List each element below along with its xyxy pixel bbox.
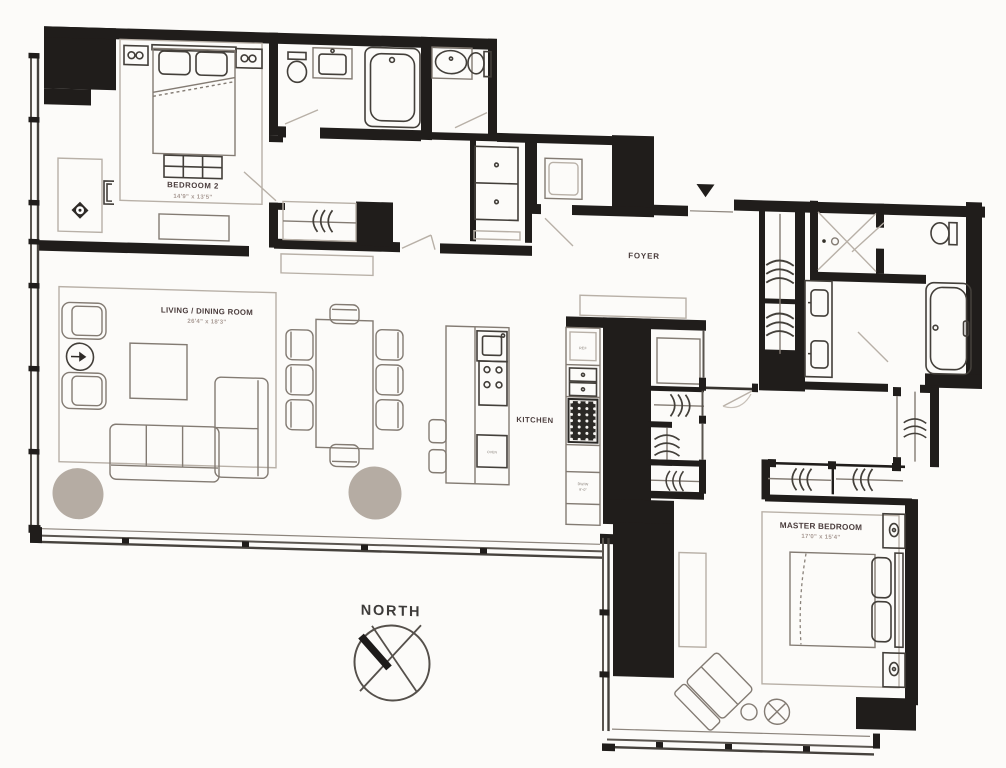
svg-text:17'0" x 15'4": 17'0" x 15'4" — [801, 534, 840, 541]
svg-text:9'-0": 9'-0" — [579, 488, 587, 492]
svg-text:DW/W: DW/W — [578, 482, 589, 486]
svg-text:26'4" x 18'3": 26'4" x 18'3" — [187, 319, 226, 326]
svg-text:OVEN: OVEN — [487, 450, 497, 454]
svg-text:BEDROOM 2: BEDROOM 2 — [167, 180, 219, 190]
svg-text:NORTH: NORTH — [361, 603, 422, 621]
svg-text:REF: REF — [579, 346, 587, 350]
svg-text:14'9" x 13'5": 14'9" x 13'5" — [173, 194, 212, 201]
svg-text:FOYER: FOYER — [628, 251, 660, 261]
svg-text:KITCHEN: KITCHEN — [516, 415, 553, 425]
